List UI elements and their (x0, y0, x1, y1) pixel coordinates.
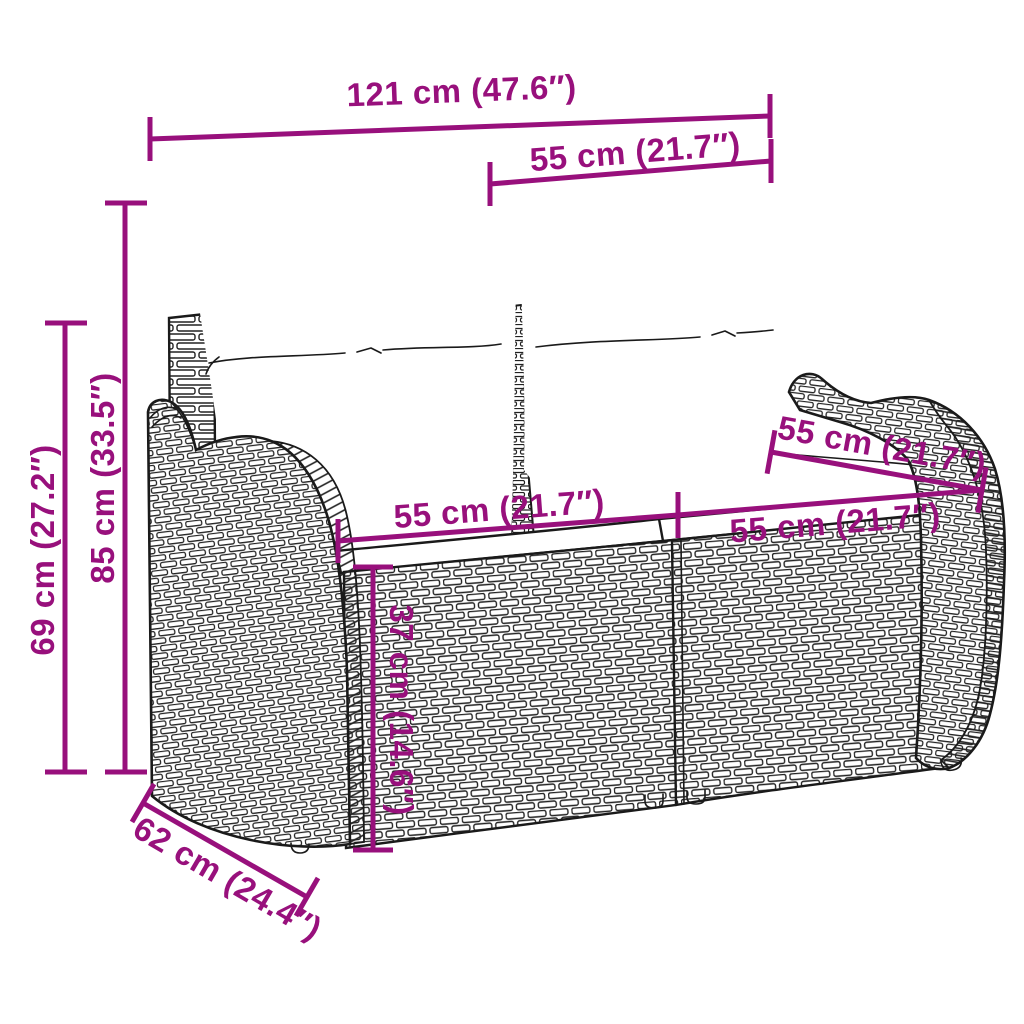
dimension-diagram: 121 cm (47.6″) 55 cm (21.7″) 85 cm (33.5… (0, 0, 1024, 1024)
bench-diagram-canvas: 121 cm (47.6″) 55 cm (21.7″) 85 cm (33.5… (0, 0, 1024, 1024)
dim-total-height-label: 85 cm (33.5″) (84, 372, 121, 583)
back-cushion-right (519, 191, 790, 484)
dim-total-width-label: 121 cm (47.6″) (346, 68, 577, 114)
dim-seat-height-label: 37 cm (14.6″) (383, 604, 420, 815)
dim-total-height: 85 cm (33.5″) (84, 203, 147, 772)
dim-armrest-height-label: 69 cm (27.2″) (24, 444, 61, 655)
dim-armrest-height: 69 cm (27.2″) (24, 323, 87, 772)
